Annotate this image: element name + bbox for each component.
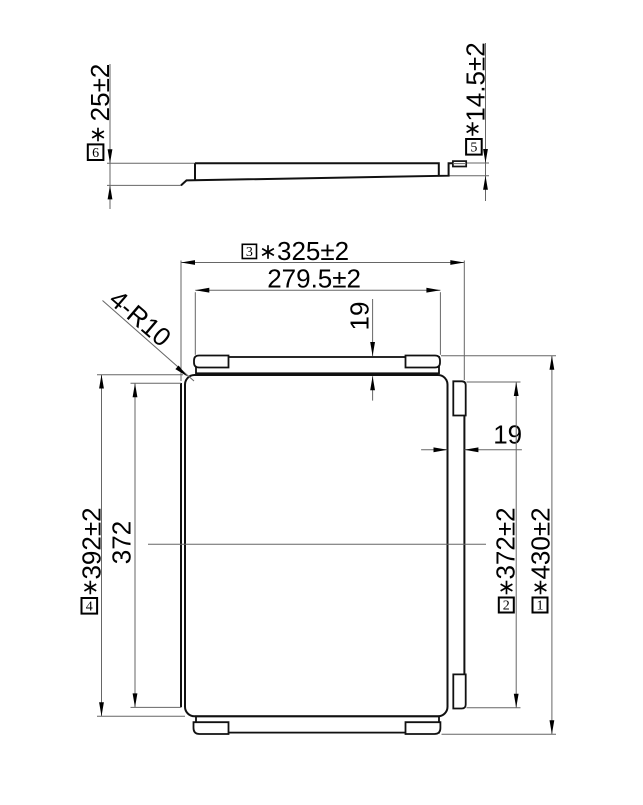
svg-text:430±2: 430±2 — [526, 507, 556, 579]
svg-text:372±2: 372±2 — [491, 507, 521, 579]
svg-text:5: 5 — [470, 141, 477, 156]
svg-text:19: 19 — [493, 420, 522, 450]
svg-text:372: 372 — [107, 521, 137, 564]
svg-text:19: 19 — [345, 302, 375, 331]
svg-text:6: 6 — [92, 146, 99, 161]
svg-text:3: 3 — [246, 245, 253, 260]
svg-text:1: 1 — [537, 599, 544, 614]
svg-text:14.5±2: 14.5±2 — [461, 42, 491, 121]
svg-text:392±2: 392±2 — [77, 507, 107, 579]
svg-text:4: 4 — [86, 600, 93, 615]
svg-text:2: 2 — [503, 599, 510, 614]
svg-text:325±2: 325±2 — [277, 236, 349, 266]
svg-text:25±2: 25±2 — [85, 64, 115, 122]
svg-text:279.5±2: 279.5±2 — [267, 264, 361, 294]
